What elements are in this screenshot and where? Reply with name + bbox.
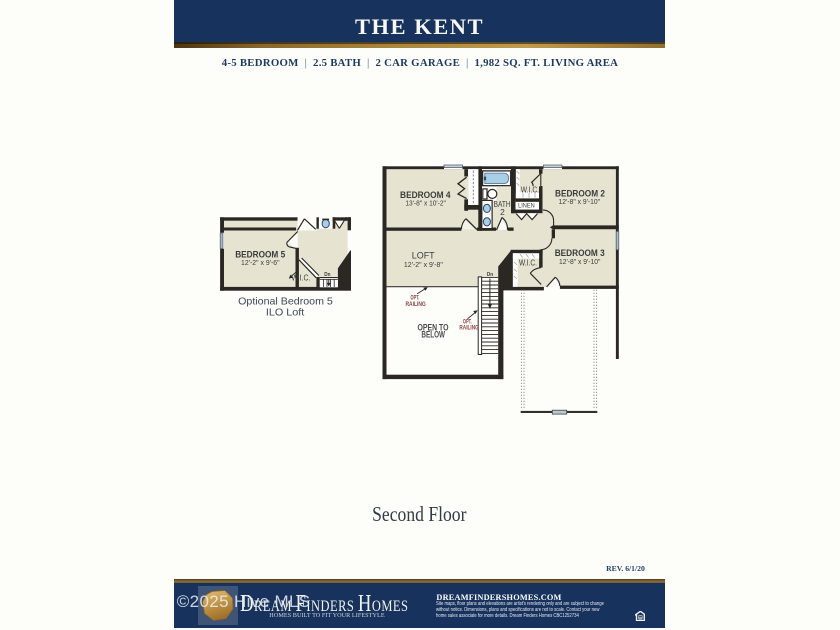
svg-text:REV. 6/1/20: REV. 6/1/20 [606,564,645,573]
svg-text:Second Floor: Second Floor [372,502,466,526]
svg-text:Optional Bedroom 5: Optional Bedroom 5 [238,297,333,308]
svg-text:ILO Loft: ILO Loft [266,307,305,318]
